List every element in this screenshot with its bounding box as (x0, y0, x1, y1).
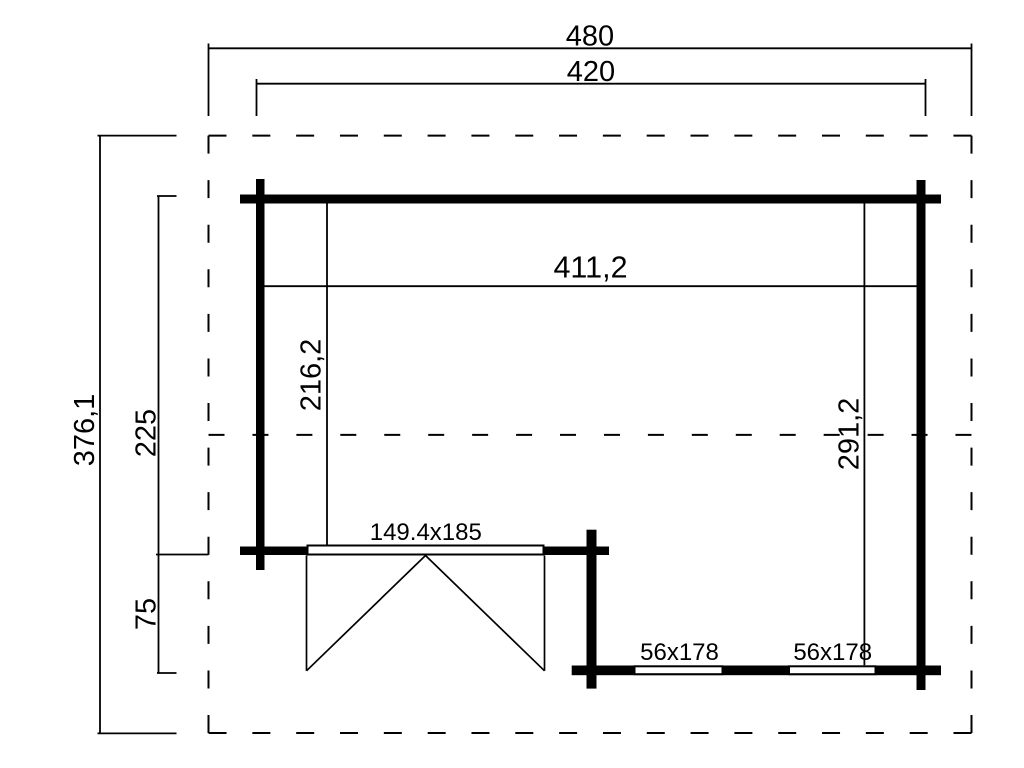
svg-text:225: 225 (131, 409, 163, 457)
svg-text:376,1: 376,1 (69, 394, 101, 467)
svg-text:420: 420 (567, 56, 615, 88)
svg-text:75: 75 (131, 598, 163, 630)
svg-text:291,2: 291,2 (834, 398, 866, 471)
svg-text:411,2: 411,2 (553, 251, 627, 285)
svg-text:56x178: 56x178 (793, 639, 872, 666)
svg-text:216,2: 216,2 (296, 339, 328, 412)
svg-text:56x178: 56x178 (640, 639, 719, 666)
svg-text:480: 480 (566, 21, 614, 53)
svg-text:149.4x185: 149.4x185 (370, 519, 482, 546)
